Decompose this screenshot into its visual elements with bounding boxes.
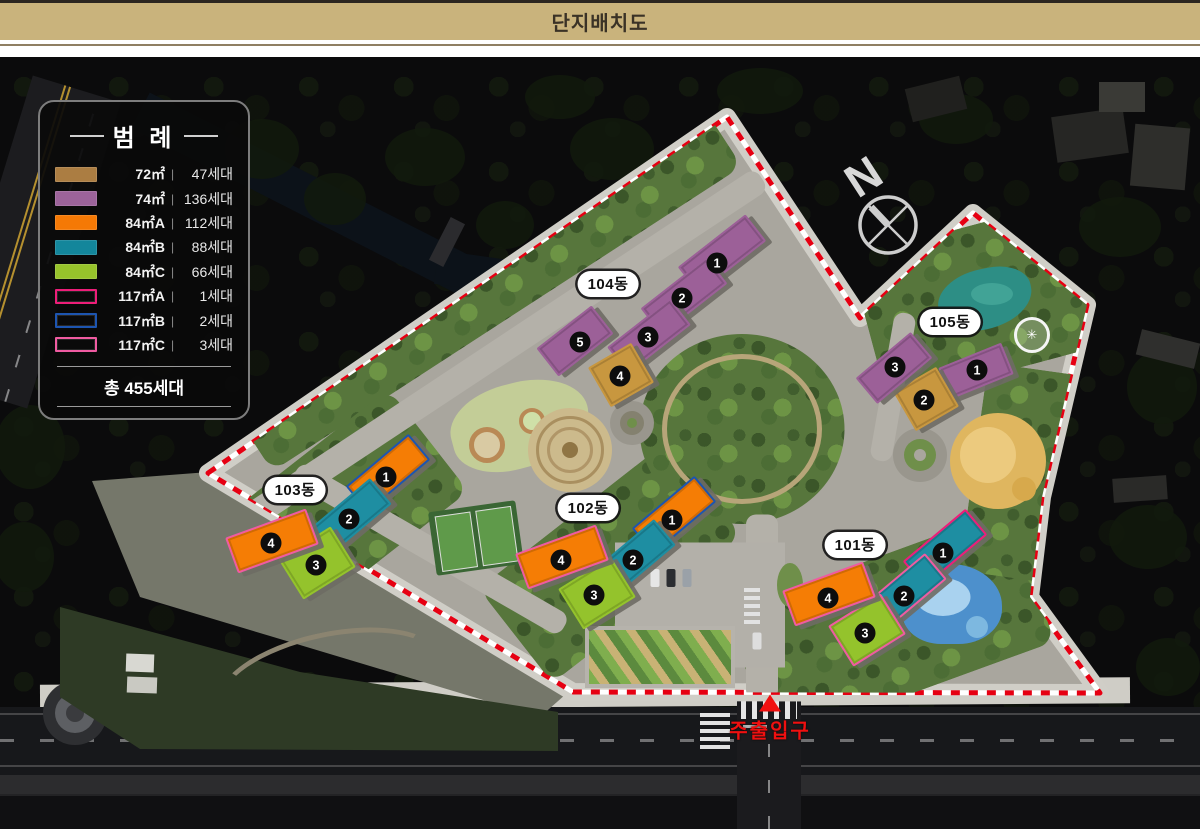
legend-separator: | bbox=[171, 265, 174, 279]
unit-number: 3 bbox=[584, 585, 605, 606]
building-label-101: 101동 bbox=[825, 532, 886, 558]
legend-label: 117㎡B bbox=[107, 311, 165, 331]
unit-number: 2 bbox=[672, 288, 693, 309]
legend-total: 총 455세대 bbox=[55, 367, 233, 406]
unit-number: 4 bbox=[610, 366, 631, 387]
page-title: 단지배치도 bbox=[0, 3, 1200, 40]
unit-number: 1 bbox=[376, 467, 397, 488]
legend-count: 3세대 bbox=[180, 335, 233, 355]
legend-count: 88세대 bbox=[180, 237, 233, 257]
unit-number: 2 bbox=[623, 550, 644, 571]
playground-ring bbox=[469, 427, 505, 463]
unit-number: 3 bbox=[855, 623, 876, 644]
legend-swatch bbox=[55, 313, 97, 328]
sand-play-area-inner bbox=[960, 427, 1016, 483]
legend-item: 117㎡C | 3세대 bbox=[55, 333, 233, 357]
parked-car bbox=[683, 569, 692, 587]
unit-number: 4 bbox=[551, 550, 572, 571]
tennis-court-field bbox=[475, 506, 518, 566]
legend-swatch bbox=[55, 289, 97, 304]
building-label-102: 102동 bbox=[558, 495, 619, 521]
legend-label: 84㎡B bbox=[107, 237, 165, 257]
legend-count: 66세대 bbox=[180, 262, 233, 282]
building-label-103: 103동 bbox=[265, 477, 326, 503]
legend-label: 84㎡C bbox=[107, 262, 165, 282]
legend-swatch bbox=[55, 240, 97, 255]
entrance-label: 주출입구 bbox=[729, 715, 811, 744]
legend-item: 74㎡ | 136세대 bbox=[55, 186, 233, 210]
unit-number: 1 bbox=[707, 253, 728, 274]
legend-title-row: 범 례 bbox=[55, 118, 233, 153]
legend-count: 136세대 bbox=[180, 189, 233, 209]
legend-item: 84㎡C | 66세대 bbox=[55, 260, 233, 284]
unit-number: 1 bbox=[933, 543, 954, 564]
tennis-court bbox=[428, 500, 524, 576]
legend-separator: | bbox=[171, 192, 174, 206]
legend-label: 74㎡ bbox=[107, 189, 165, 209]
fountain-icon: ✳ bbox=[1014, 317, 1050, 353]
legend-count: 2세대 bbox=[180, 311, 233, 331]
site-roundabout-core bbox=[914, 449, 926, 461]
parked-car bbox=[753, 633, 762, 650]
legend-label: 84㎡A bbox=[107, 213, 165, 233]
legend-label: 72㎡ bbox=[107, 164, 165, 184]
site-roundabout-core bbox=[627, 418, 637, 428]
legend-count: 112세대 bbox=[180, 213, 233, 233]
unit-number: 2 bbox=[339, 509, 360, 530]
unit-number: 1 bbox=[967, 360, 988, 381]
sand-play-ring bbox=[1012, 477, 1036, 501]
legend: 범 례 72㎡ | 47세대 74㎡ | 136세대 84㎡A | 112세대 … bbox=[38, 100, 250, 420]
legend-swatch bbox=[55, 191, 97, 206]
parked-car bbox=[651, 569, 660, 587]
legend-title: 범 례 bbox=[113, 118, 176, 153]
building-label-105: 105동 bbox=[920, 309, 981, 335]
legend-swatch bbox=[55, 167, 97, 182]
legend-swatch bbox=[55, 215, 97, 230]
unit-number: 2 bbox=[894, 586, 915, 607]
legend-divider bbox=[57, 406, 231, 407]
page-header: 단지배치도 bbox=[0, 0, 1200, 57]
building-label-104: 104동 bbox=[578, 271, 639, 297]
header-gap bbox=[0, 46, 1200, 57]
north-arrow: N bbox=[835, 146, 916, 253]
crosswalk bbox=[744, 586, 760, 624]
legend-label: 117㎡C bbox=[107, 335, 165, 355]
legend-count: 1세대 bbox=[180, 286, 233, 306]
site-map: N bbox=[0, 57, 1200, 829]
legend-item: 117㎡A | 1세대 bbox=[55, 284, 233, 308]
legend-separator: | bbox=[171, 289, 174, 303]
legend-item: 72㎡ | 47세대 bbox=[55, 162, 233, 186]
unit-number: 3 bbox=[885, 357, 906, 378]
legend-item: 117㎡B | 2세대 bbox=[55, 308, 233, 332]
legend-swatch bbox=[55, 337, 97, 352]
legend-title-line bbox=[184, 135, 218, 137]
plaza-mandala-core bbox=[562, 442, 578, 458]
unit-number: 3 bbox=[638, 327, 659, 348]
garden-strip bbox=[585, 626, 735, 688]
unit-number: 3 bbox=[306, 555, 327, 576]
legend-separator: | bbox=[171, 338, 174, 352]
legend-title-line bbox=[70, 135, 104, 137]
legend-count: 47세대 bbox=[180, 164, 233, 184]
legend-item: 84㎡B | 88세대 bbox=[55, 235, 233, 259]
unit-number: 4 bbox=[818, 588, 839, 609]
parked-car bbox=[667, 569, 676, 587]
unit-number: 4 bbox=[261, 533, 282, 554]
pond-highlight bbox=[971, 283, 1013, 305]
legend-separator: | bbox=[171, 240, 174, 254]
water-pool-dot bbox=[966, 616, 988, 638]
entrance-arrow-icon bbox=[759, 695, 781, 712]
legend-separator: | bbox=[171, 216, 174, 230]
unit-number: 2 bbox=[914, 390, 935, 411]
legend-separator: | bbox=[171, 314, 174, 328]
unit-number: 1 bbox=[662, 510, 683, 531]
legend-swatch bbox=[55, 264, 97, 279]
legend-separator: | bbox=[171, 167, 174, 181]
legend-item: 84㎡A | 112세대 bbox=[55, 211, 233, 235]
unit-number: 5 bbox=[570, 332, 591, 353]
tennis-court-field bbox=[435, 512, 478, 572]
legend-label: 117㎡A bbox=[107, 286, 165, 306]
